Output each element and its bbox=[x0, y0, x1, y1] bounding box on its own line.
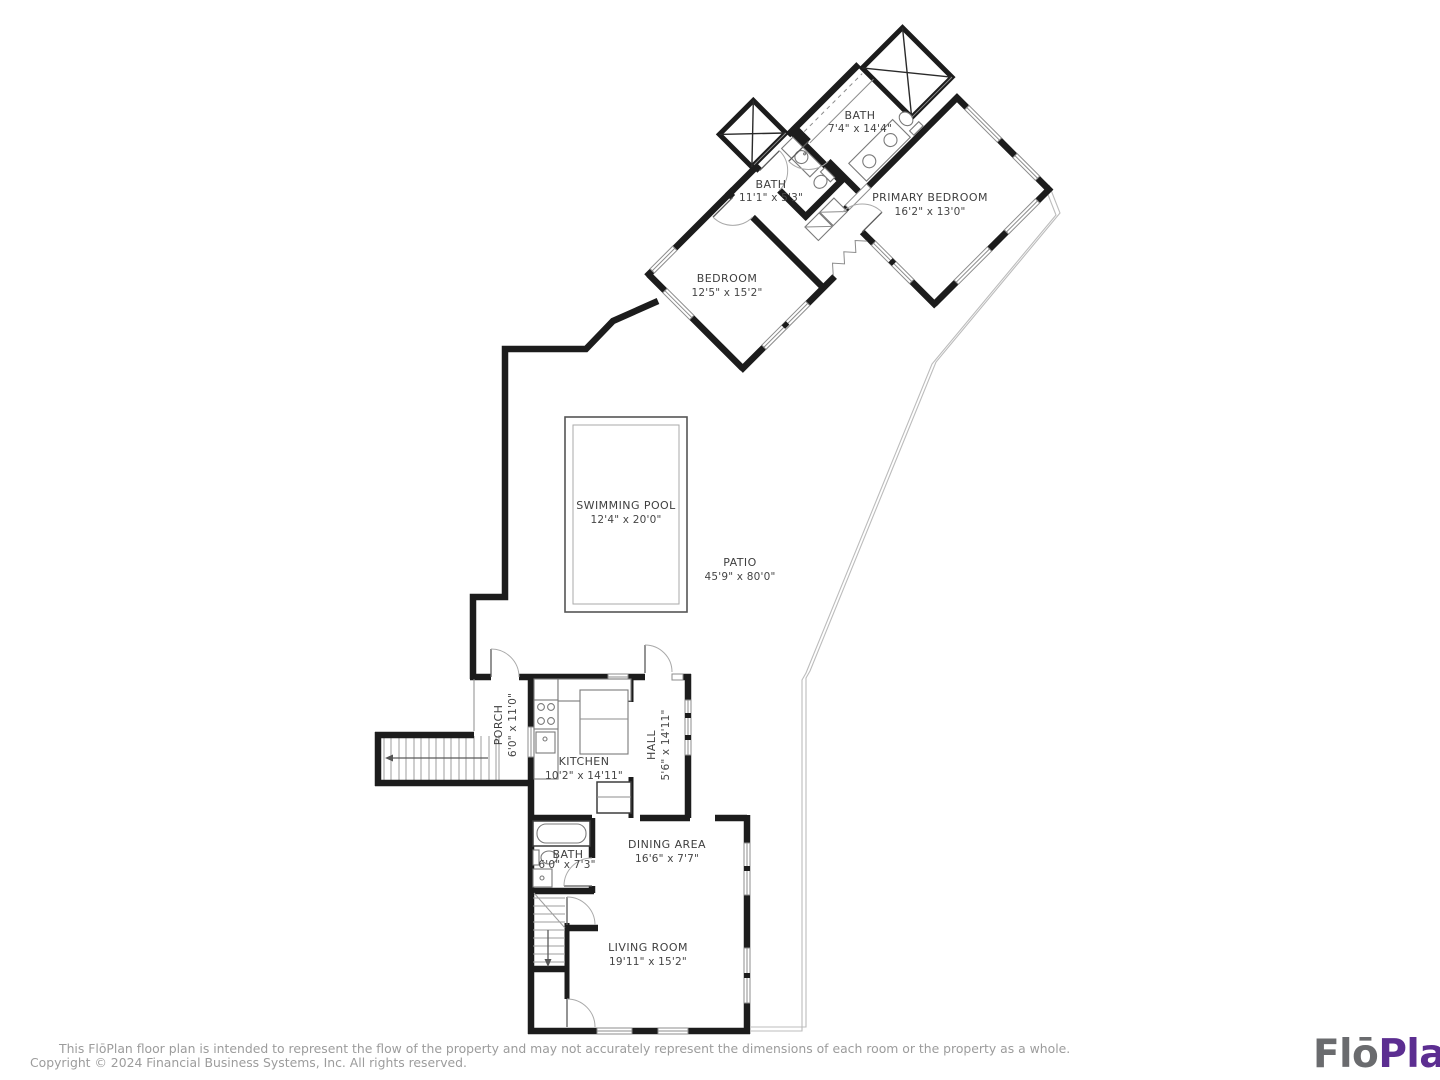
room-label-bath-upper-hall: BATH bbox=[755, 178, 786, 191]
room-label-hall: HALL bbox=[645, 730, 658, 760]
room-label-swimming-pool: SWIMMING POOL bbox=[576, 499, 676, 512]
room-dims-kitchen: 10'2" x 14'11" bbox=[545, 770, 623, 782]
floor-plan-page: PRIMARY BEDROOM 16'2" x 13'0" BEDROOM 12… bbox=[0, 0, 1440, 1080]
room-label-primary-bedroom: PRIMARY BEDROOM bbox=[872, 191, 988, 204]
room-dims-primary-bedroom: 16'2" x 13'0" bbox=[894, 206, 965, 218]
room-dims-hall: 5'6" x 14'11" bbox=[660, 709, 672, 780]
room-dims-living-room: 19'11" x 15'2" bbox=[609, 956, 687, 968]
room-dims-dining-area: 16'6" x 7'7" bbox=[635, 853, 699, 865]
floplan-logo: FlōPlan bbox=[1313, 1032, 1440, 1077]
logo-plan: Plan bbox=[1378, 1032, 1440, 1077]
room-dims-bath-upper-hall: 11'1" x 5'3" bbox=[739, 192, 803, 204]
room-dims-swimming-pool: 12'4" x 20'0" bbox=[590, 514, 661, 526]
room-dims-bath-primary: 7'4" x 14'4" bbox=[828, 123, 892, 135]
room-label-kitchen: KITCHEN bbox=[559, 755, 610, 768]
room-label-porch: PORCH bbox=[492, 705, 505, 746]
footer-disclaimer: This FlōPlan floor plan is intended to r… bbox=[58, 1041, 1070, 1056]
footer-copyright: Copyright © 2024 Financial Business Syst… bbox=[30, 1055, 467, 1070]
room-label-living-room: LIVING ROOM bbox=[608, 941, 688, 954]
logo-flo: Flō bbox=[1313, 1032, 1378, 1077]
room-dims-bedroom: 12'5" x 15'2" bbox=[691, 287, 762, 299]
room-label-bedroom: BEDROOM bbox=[697, 272, 758, 285]
floor-plan-svg: PRIMARY BEDROOM 16'2" x 13'0" BEDROOM 12… bbox=[0, 0, 1440, 1080]
kitchen-island bbox=[580, 690, 628, 754]
room-dims-porch: 6'0" x 11'0" bbox=[507, 693, 519, 757]
page-background bbox=[0, 0, 1440, 1080]
range-icon bbox=[534, 700, 558, 729]
kitchen-sink-icon bbox=[536, 732, 555, 753]
room-dims-bath-lower: 6'0" x 7'3" bbox=[538, 859, 595, 871]
room-label-patio: PATIO bbox=[723, 556, 756, 569]
svg-text:FlōPlan: FlōPlan bbox=[1313, 1032, 1440, 1077]
room-dims-patio: 45'9" x 80'0" bbox=[704, 571, 775, 583]
room-label-bath-primary: BATH bbox=[844, 109, 875, 122]
room-label-dining-area: DINING AREA bbox=[628, 838, 706, 851]
